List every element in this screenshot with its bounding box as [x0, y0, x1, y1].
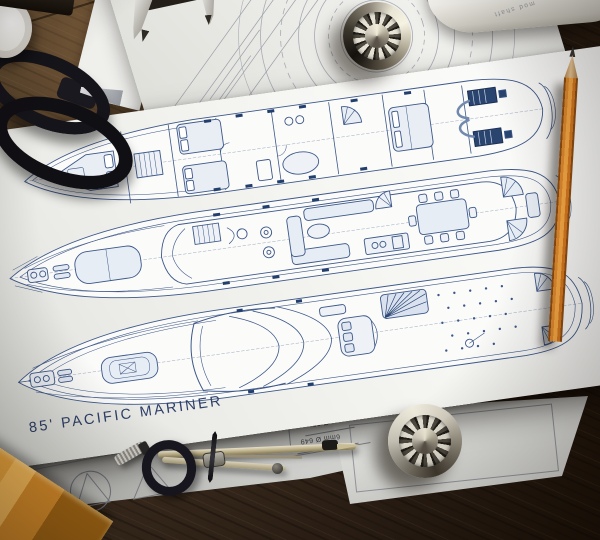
desk-scene: Ø 68 6mm Ø 649 — [0, 0, 600, 540]
ball-bearing-top — [343, 2, 411, 70]
bearing-inner-race — [365, 24, 388, 47]
pencil-lead-tip — [569, 46, 576, 57]
bearing-inner-race — [412, 428, 437, 453]
ball-bearing-bottom — [388, 404, 462, 478]
compass-tip-collar — [322, 440, 339, 451]
pencil-sharpened-cone — [564, 55, 579, 80]
compass-end-nut — [272, 463, 283, 474]
